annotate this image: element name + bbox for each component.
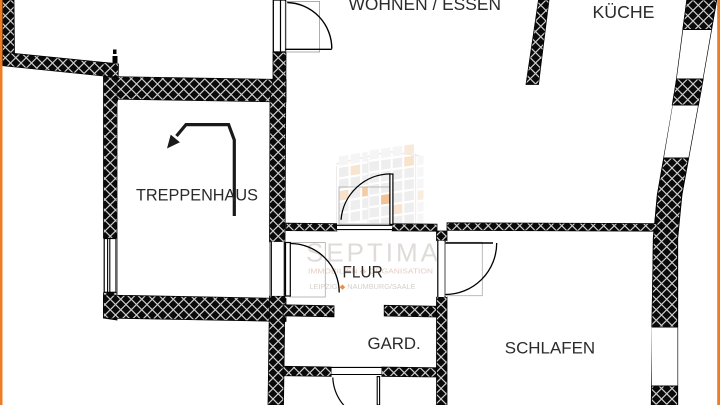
svg-text:SCHLAFEN: SCHLAFEN bbox=[505, 338, 595, 357]
svg-text:WOHNEN / ESSEN: WOHNEN / ESSEN bbox=[349, 0, 502, 14]
svg-text:FLUR: FLUR bbox=[343, 263, 383, 281]
svg-text:KÜCHE: KÜCHE bbox=[593, 2, 655, 22]
svg-text:GARD.: GARD. bbox=[368, 334, 421, 353]
svg-text:TREPPENHAUS: TREPPENHAUS bbox=[136, 186, 258, 205]
